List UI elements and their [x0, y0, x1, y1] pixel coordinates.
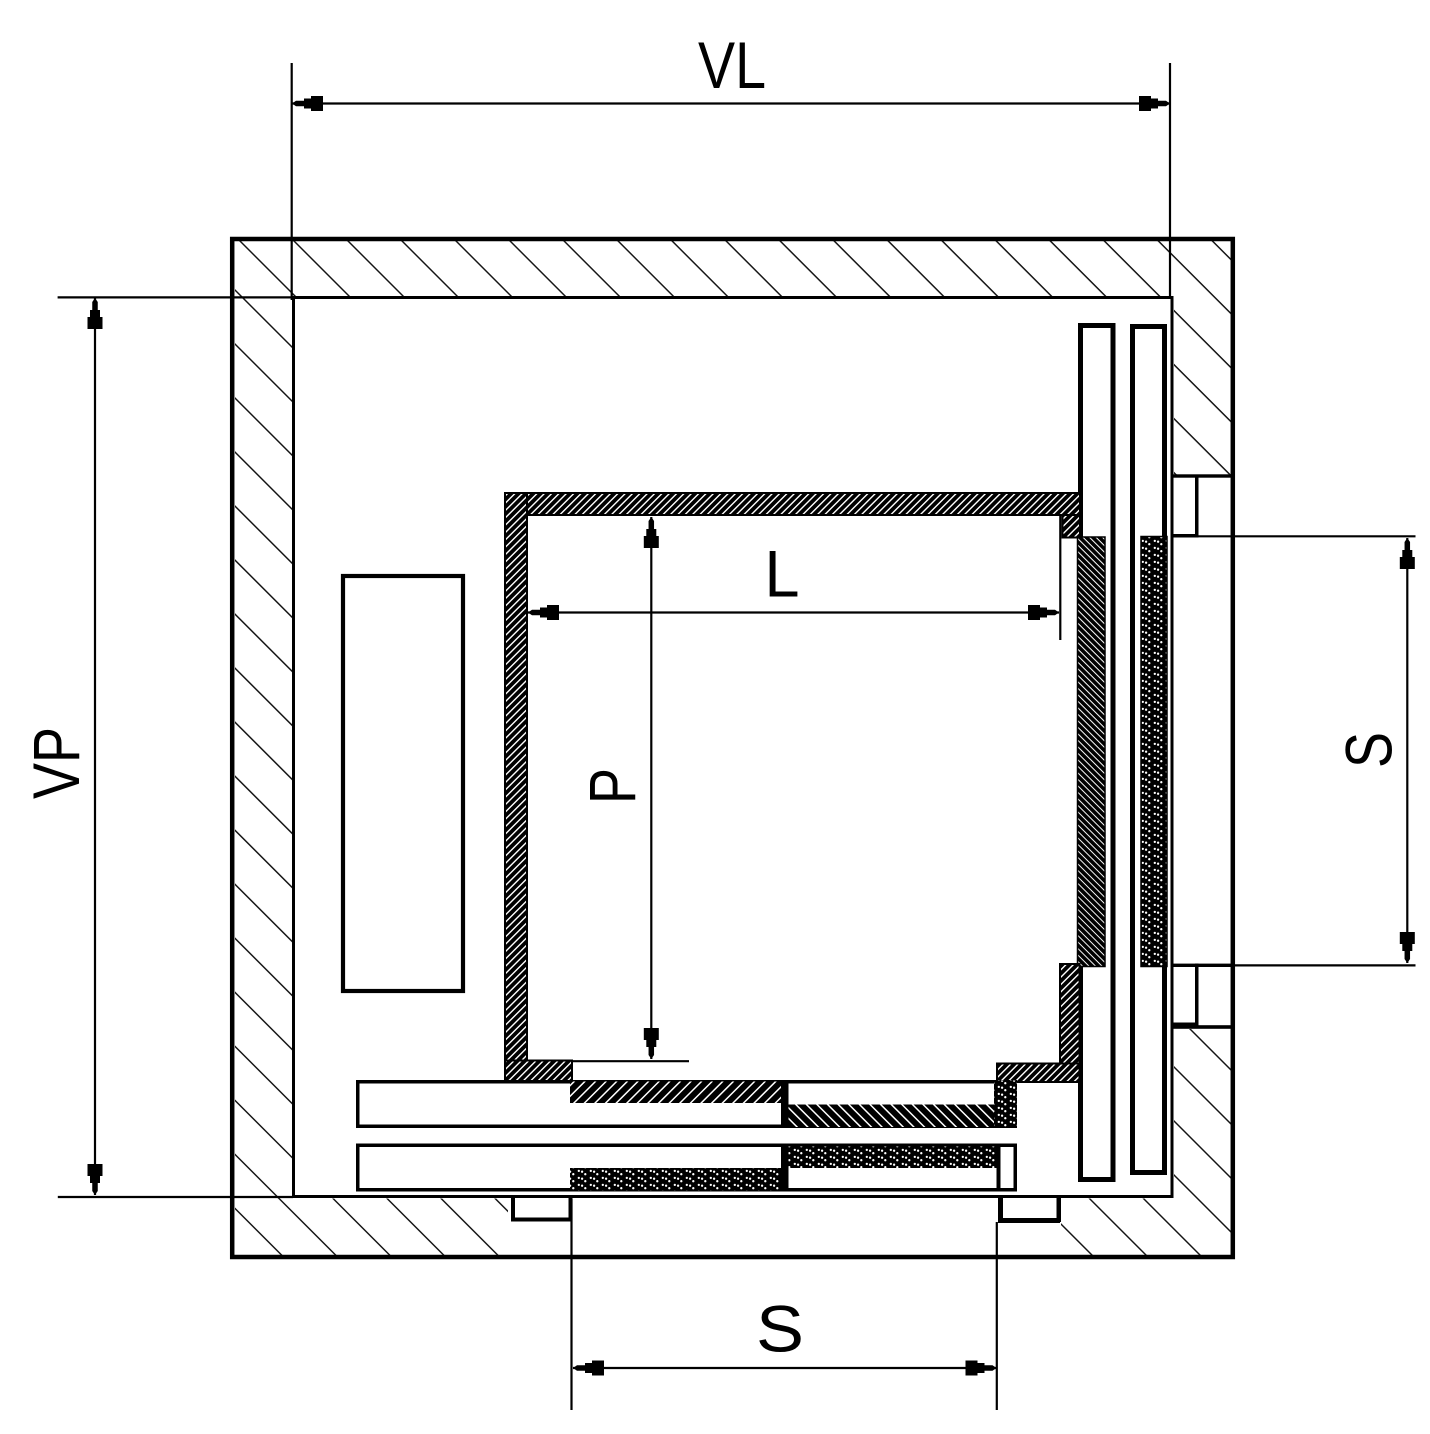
svg-text:S: S [756, 1292, 804, 1366]
svg-text:VL: VL [698, 28, 766, 102]
svg-text:VP: VP [19, 727, 93, 799]
svg-text:P: P [575, 768, 649, 804]
svg-text:L: L [765, 537, 800, 611]
svg-text:S: S [1332, 732, 1406, 768]
